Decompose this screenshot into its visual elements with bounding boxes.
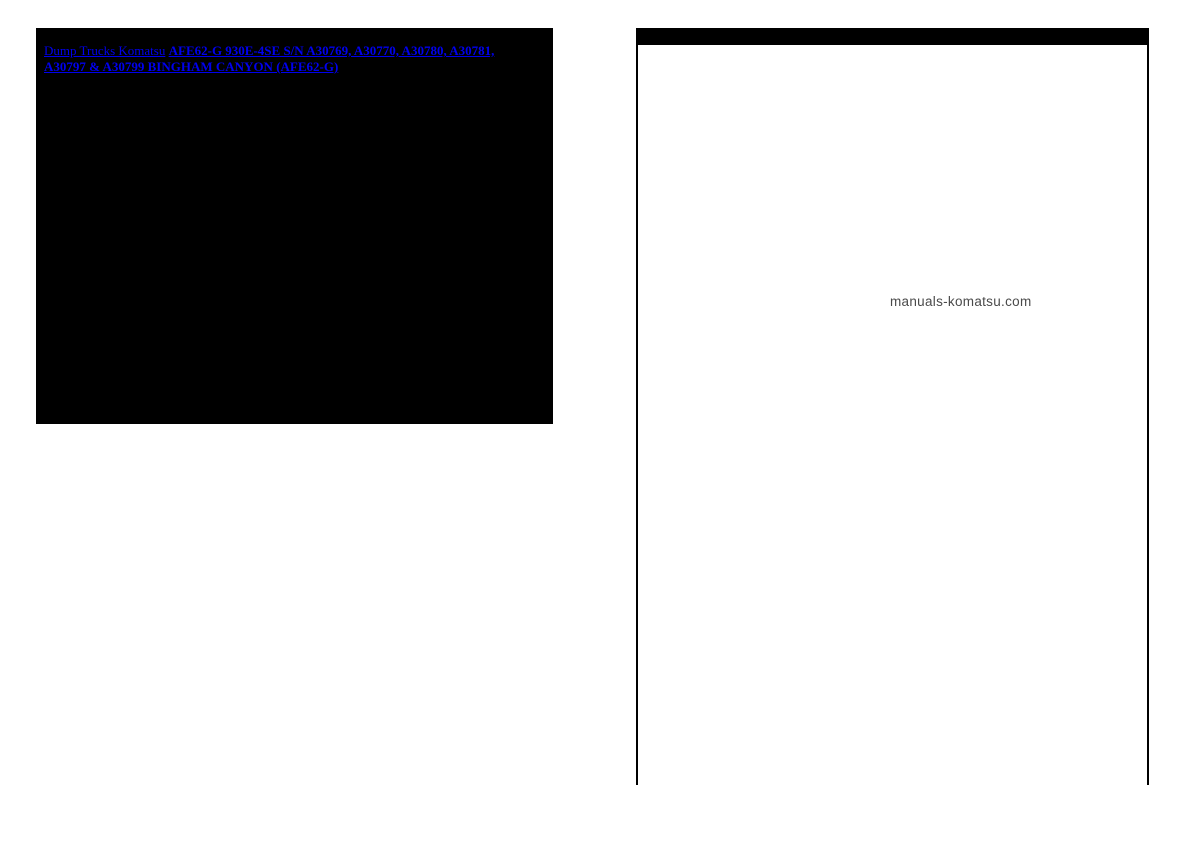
breadcrumb: Dump Trucks Komatsu AFE62-G 930E-4SE S/N… xyxy=(36,28,544,75)
parts-diagram: 678959101115111213142347891 xyxy=(636,28,1149,785)
diagram-panel: manuals-komatsu.com xyxy=(636,28,1149,785)
breadcrumb-link-category[interactable]: Dump Trucks Komatsu xyxy=(44,43,165,58)
page: Dump Trucks Komatsu AFE62-G 930E-4SE S/N… xyxy=(0,0,1190,842)
left-black-panel: Dump Trucks Komatsu AFE62-G 930E-4SE S/N… xyxy=(36,28,553,424)
